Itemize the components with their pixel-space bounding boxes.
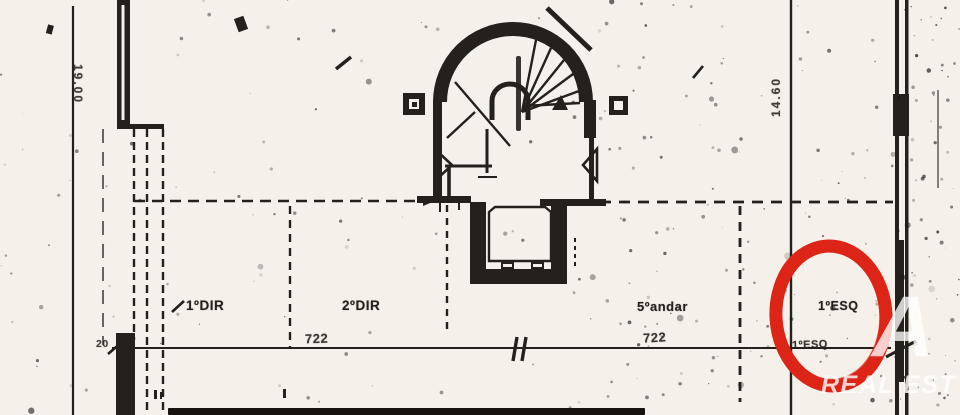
watermark-text: REAL EST (821, 371, 956, 400)
watermark-logo-letter: A (872, 284, 934, 370)
scanned-floor-plan: 19.00 14.60 1ºDIR 2ºDIR 5ºandar 1ºESQ 1º… (0, 0, 960, 415)
highlight-annotation (0, 0, 960, 415)
